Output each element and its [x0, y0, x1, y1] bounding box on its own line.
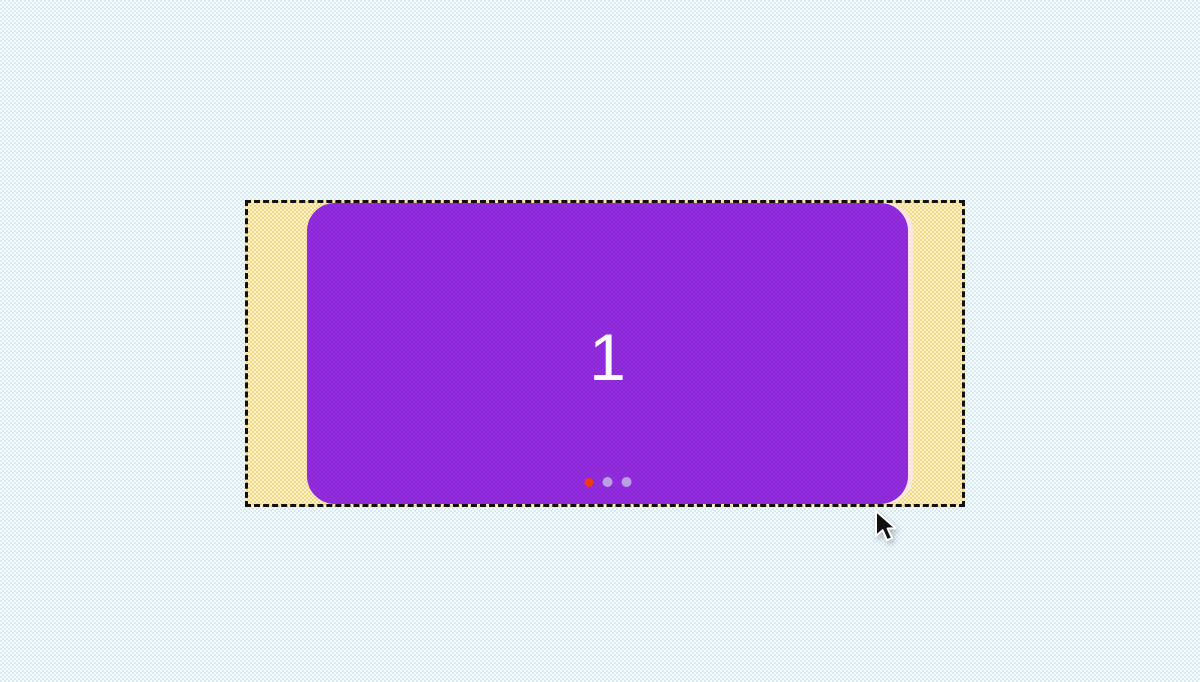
pagination-dot-2[interactable] — [602, 477, 612, 487]
carousel-slide-1[interactable]: 1 — [307, 203, 908, 504]
pagination-dot-1[interactable] — [584, 478, 593, 487]
pagination-dot-3[interactable] — [621, 477, 631, 487]
carousel-viewport[interactable]: 1 — [245, 200, 965, 507]
slide-number-label: 1 — [589, 324, 626, 390]
mouse-cursor-icon — [874, 510, 897, 548]
page-background: { "carousel": { "slide_label": "1", "dot… — [0, 0, 1200, 682]
pagination-dots — [584, 477, 631, 487]
